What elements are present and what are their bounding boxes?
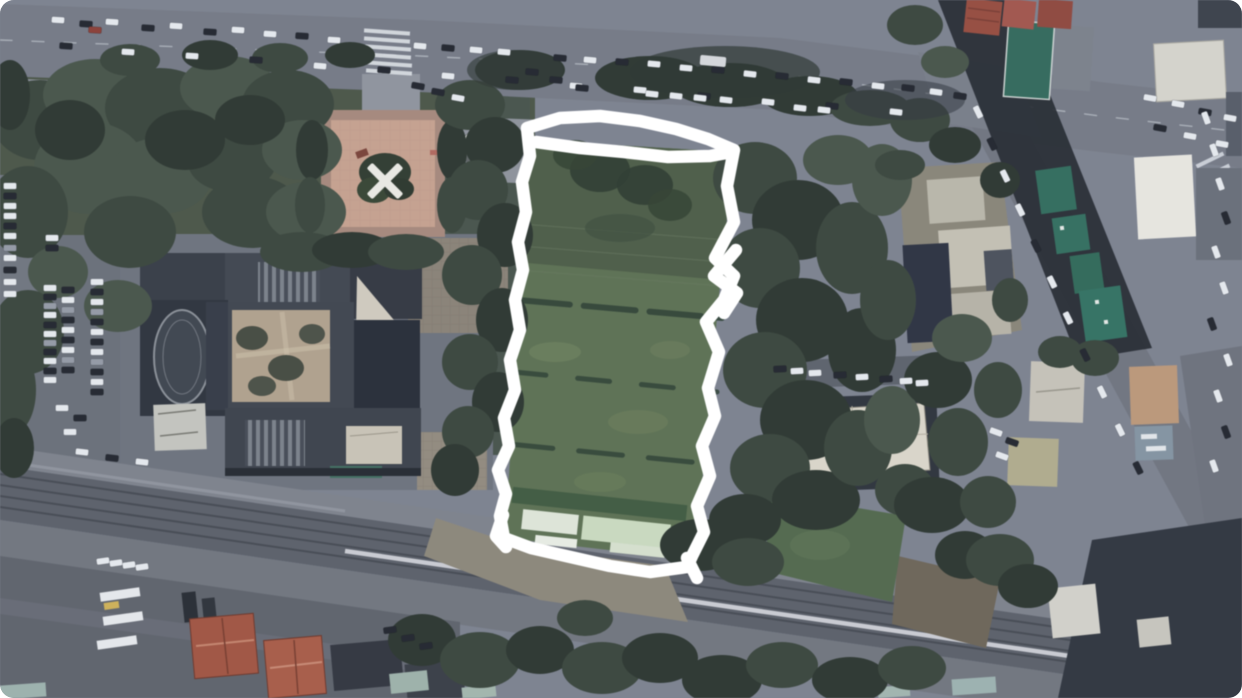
satellite-image xyxy=(0,0,1242,698)
atmosphere-shape xyxy=(0,0,1242,698)
atmosphere xyxy=(0,0,1242,698)
screenshot xyxy=(0,0,1242,698)
